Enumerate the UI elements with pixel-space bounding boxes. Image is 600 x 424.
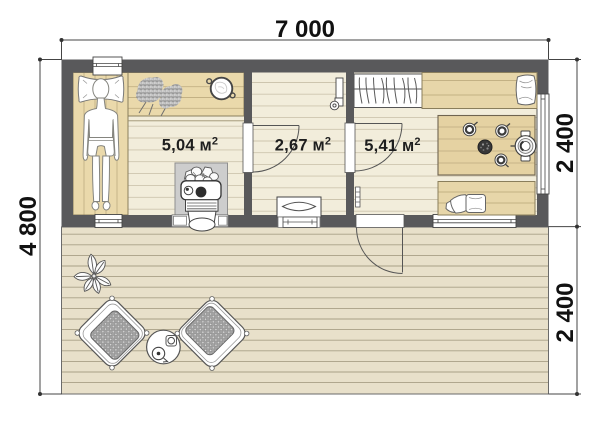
svg-text:5,04 м2: 5,04 м2: [162, 136, 218, 155]
svg-text:5,41 м2: 5,41 м2: [364, 136, 420, 155]
svg-text:4 800: 4 800: [15, 196, 42, 256]
svg-text:2 400: 2 400: [552, 282, 579, 342]
svg-text:7 000: 7 000: [275, 16, 335, 43]
svg-text:2 400: 2 400: [552, 113, 579, 173]
svg-text:2,67 м2: 2,67 м2: [275, 136, 331, 155]
